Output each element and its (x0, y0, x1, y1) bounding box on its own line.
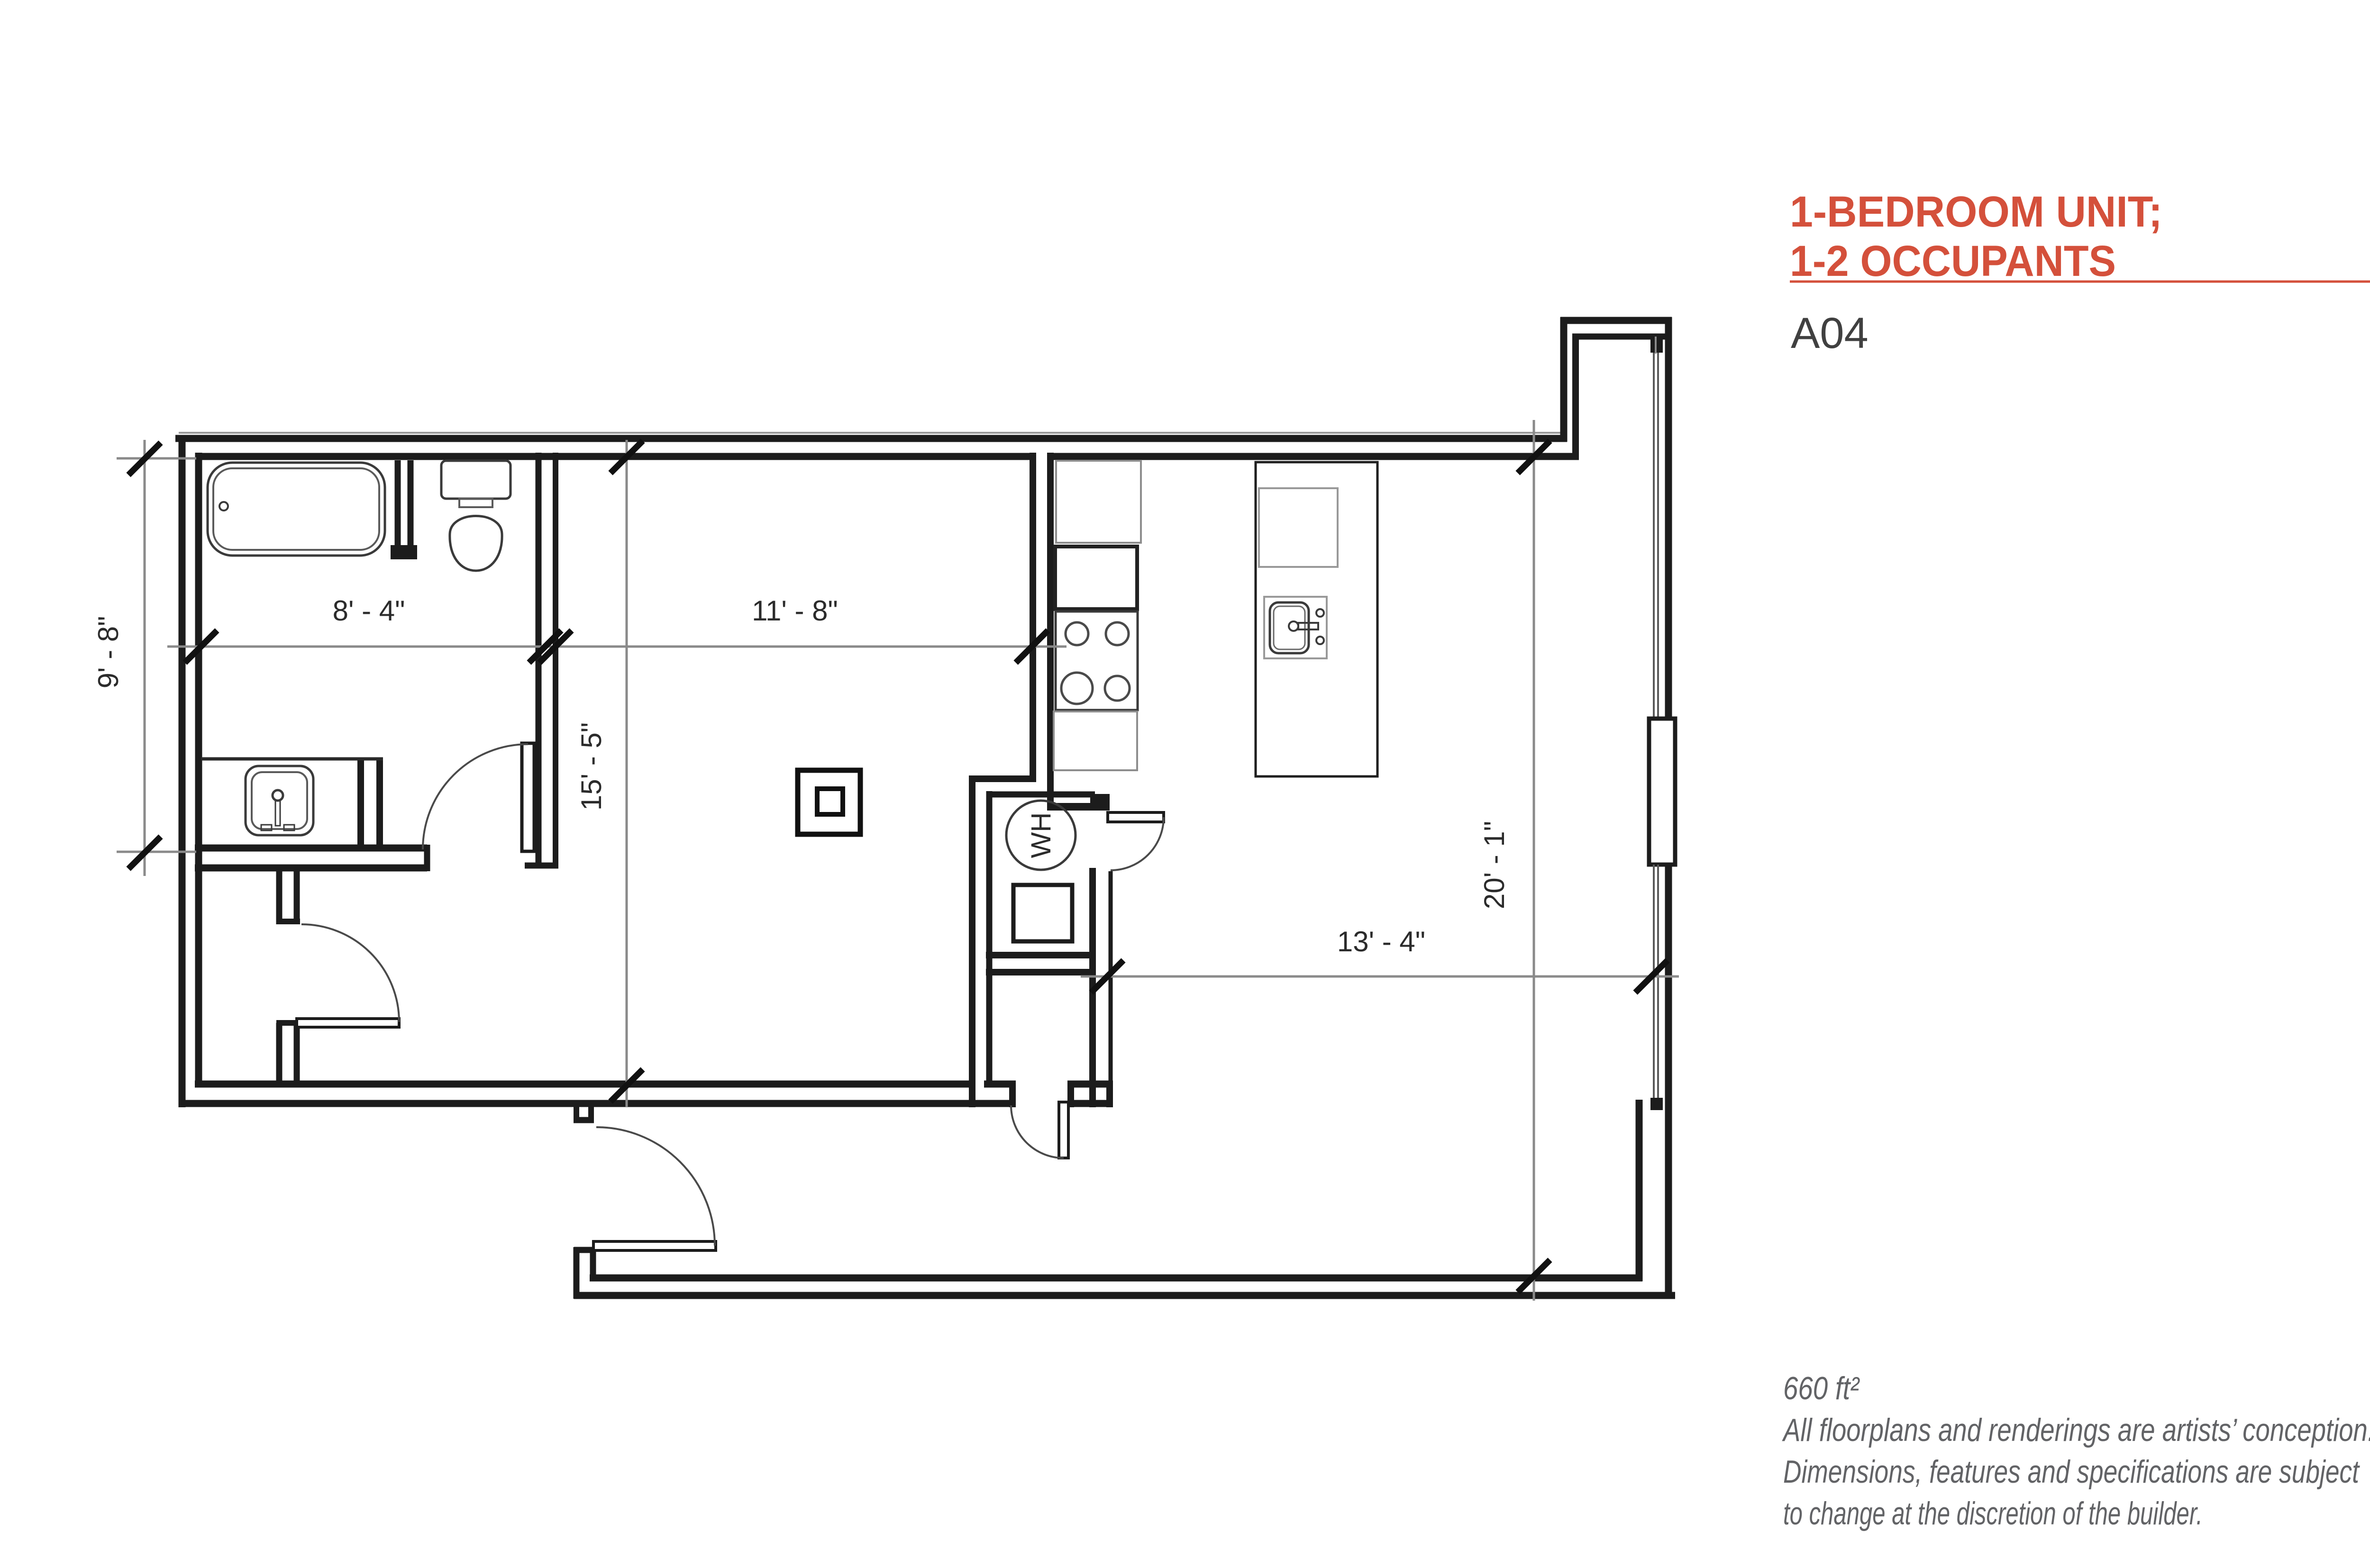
svg-text:A04: A04 (1791, 309, 1869, 357)
svg-text:11' - 8": 11' - 8" (752, 595, 838, 627)
svg-text:15' - 5": 15' - 5" (575, 722, 607, 811)
svg-text:9' - 8": 9' - 8" (92, 616, 124, 689)
svg-text:13' - 4": 13' - 4" (1337, 926, 1425, 957)
svg-text:660 ft²: 660 ft² (1783, 1370, 1860, 1406)
svg-text:1-BEDROOM UNIT;: 1-BEDROOM UNIT; (1790, 188, 2162, 236)
svg-text:20' - 1": 20' - 1" (1478, 821, 1510, 909)
svg-text:8' - 4": 8' - 4" (333, 595, 405, 627)
svg-text:to change at the discretion of: to change at the discretion of the build… (1783, 1495, 2203, 1532)
svg-text:All floorplans and renderings: All floorplans and renderings are artist… (1782, 1412, 2370, 1448)
svg-text:1-2 OCCUPANTS: 1-2 OCCUPANTS (1790, 237, 2116, 285)
svg-text:Dimensions, features and speci: Dimensions, features and specifications … (1783, 1454, 2360, 1490)
svg-text:WH: WH (1026, 812, 1057, 858)
